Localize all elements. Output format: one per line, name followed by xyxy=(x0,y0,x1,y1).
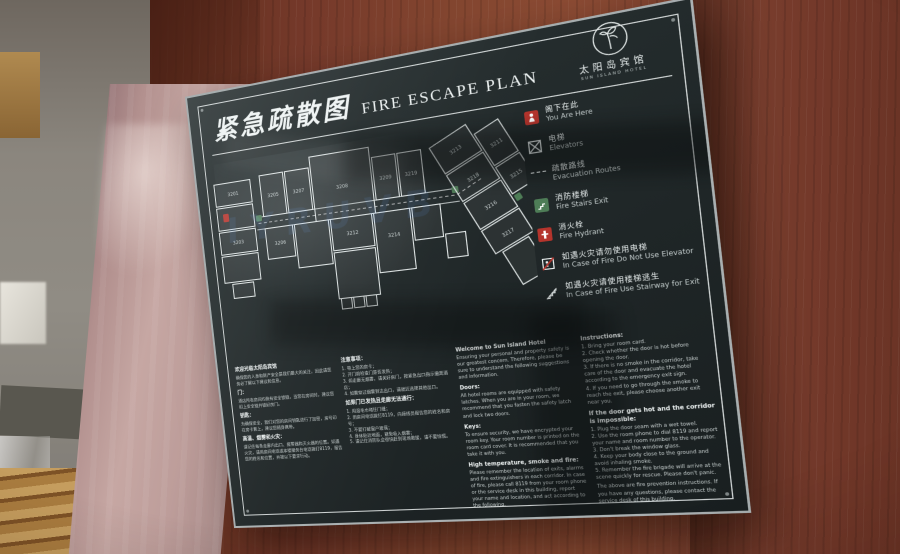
screw-icon xyxy=(246,510,249,513)
hotel-logo: 太阳岛宾馆 SUN ISLAND HOTEL xyxy=(556,11,669,85)
info-text-block: 欢迎光临太阳岛宾馆 确保您的人身和财产安全是我们最大的关注，因此请您务必了解以下… xyxy=(235,325,727,520)
fire-escape-sign: 紧急疏散图 FIRE ESCAPE PLAN 太阳岛宾馆 xyxy=(185,0,751,528)
column-en-welcome: Welcome to Sun Island Hotel Ensuring you… xyxy=(455,337,590,513)
photo-scene: 紧急疏散图 FIRE ESCAPE PLAN 太阳岛宾馆 xyxy=(0,0,900,554)
stairway-exit-icon xyxy=(543,282,559,297)
legend: 阁下在此You Are Here 电梯Elevators 疏散路线Evacuat… xyxy=(523,81,704,302)
hydrant-icon xyxy=(537,224,553,239)
screw-icon xyxy=(671,18,675,22)
route-icon xyxy=(530,165,546,181)
column-en-instructions: Instructions: 1. Bring your room card. 2… xyxy=(580,325,726,509)
window-glow xyxy=(0,282,46,344)
you-are-here-marker xyxy=(223,214,230,223)
sign-tilt: 紧急疏散图 FIRE ESCAPE PLAN 太阳岛宾馆 xyxy=(185,45,691,524)
column-zh-instructions: 注意事项： 1. 带上您的房卡； 2. 开门前检查门是否发热； 3. 如走廊无烟… xyxy=(340,348,465,516)
fire-stairs-icon xyxy=(533,194,549,209)
stairs-marker xyxy=(256,215,262,222)
column-zh-welcome: 欢迎光临太阳岛宾馆 确保您的人身和财产安全是我们最大的关注，因此请您务必了解以下… xyxy=(235,359,351,520)
floor-plan: 3213 3218 3216 3211 3215 3217 3201 3203 … xyxy=(207,106,543,354)
no-elevator-icon xyxy=(540,253,556,268)
wood-trim xyxy=(0,52,40,138)
hotel-logo-icon xyxy=(589,18,630,60)
stairs-marker xyxy=(514,192,524,201)
legend-item-use-stairway: 如遇火灾请使用楼梯逃生In Case of Fire Use Stairway … xyxy=(543,265,704,302)
elevator-icon xyxy=(527,136,543,152)
screw-icon xyxy=(725,492,729,496)
screw-icon xyxy=(200,109,203,113)
you-are-here-icon xyxy=(523,106,539,122)
